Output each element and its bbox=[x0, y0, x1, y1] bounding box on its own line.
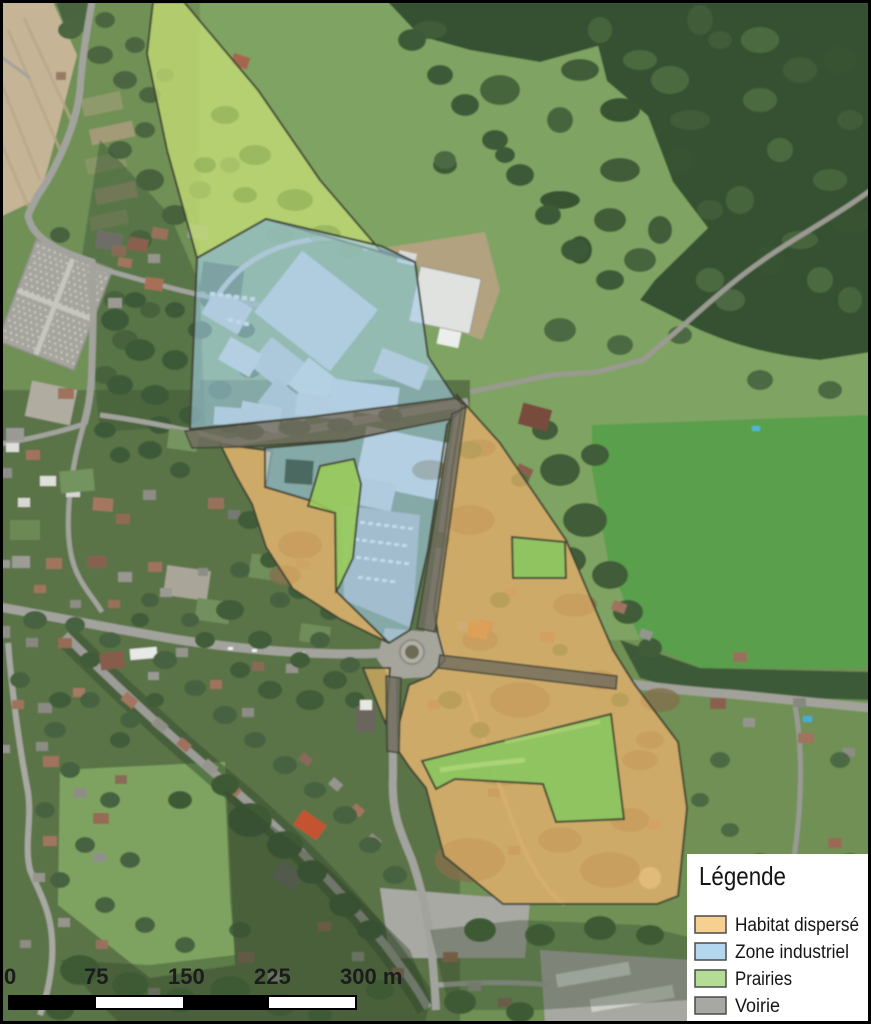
svg-text:300 m: 300 m bbox=[340, 964, 402, 989]
svg-text:Zone industriel: Zone industriel bbox=[735, 942, 849, 963]
svg-text:0: 0 bbox=[4, 964, 16, 989]
svg-text:Légende: Légende bbox=[699, 861, 786, 891]
svg-text:75: 75 bbox=[84, 964, 108, 989]
svg-text:Habitat dispersé: Habitat dispersé bbox=[735, 915, 859, 936]
svg-text:Prairies: Prairies bbox=[735, 969, 792, 990]
svg-text:150: 150 bbox=[168, 964, 205, 989]
svg-text:Voirie: Voirie bbox=[735, 996, 780, 1017]
svg-text:225: 225 bbox=[254, 964, 291, 989]
